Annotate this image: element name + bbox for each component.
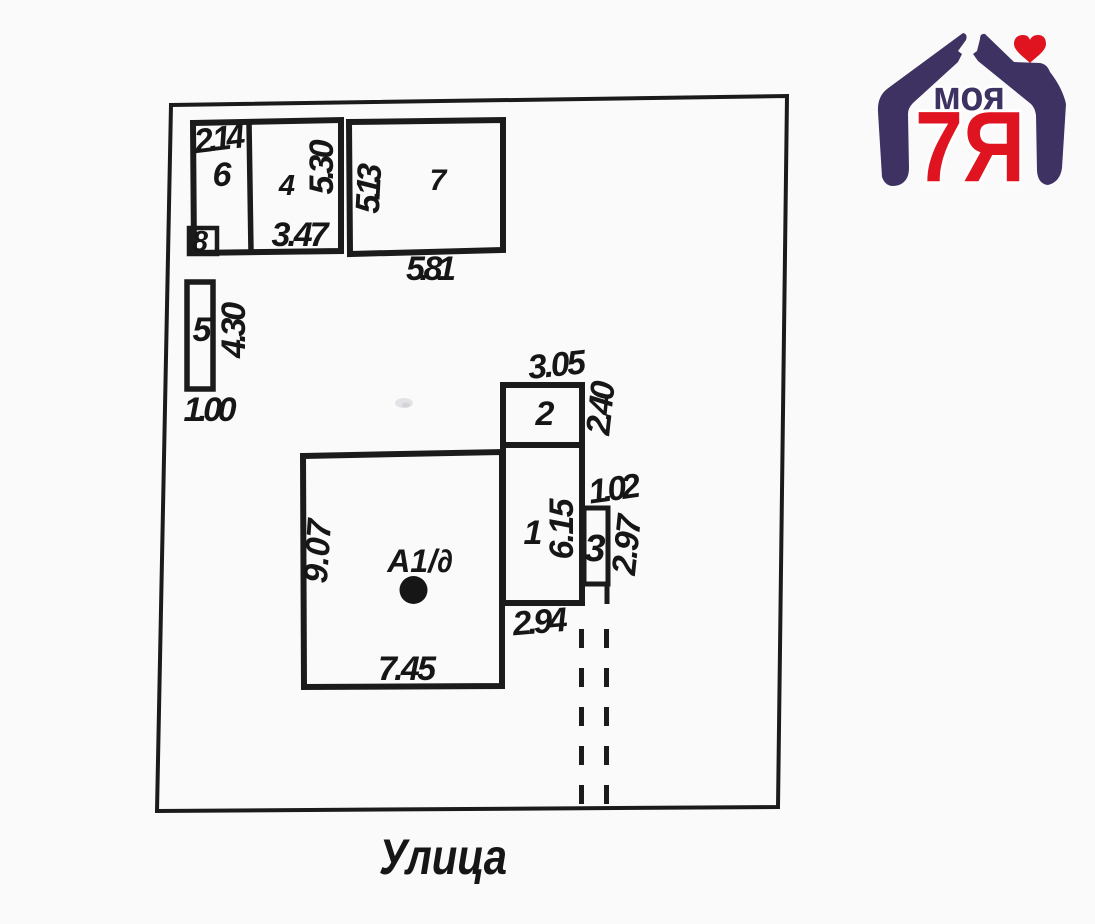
svg-text:7Я: 7Я [915, 91, 1025, 203]
svg-text:4.30: 4.30 [215, 302, 253, 359]
svg-text:7.45: 7.45 [378, 650, 437, 688]
svg-text:9.07: 9.07 [297, 516, 340, 585]
svg-text:5.13: 5.13 [349, 162, 390, 214]
svg-text:5.30: 5.30 [303, 139, 341, 194]
svg-text:6.15: 6.15 [543, 497, 581, 559]
svg-text:1.00: 1.00 [184, 391, 237, 429]
svg-text:3: 3 [584, 528, 605, 570]
svg-text:8: 8 [192, 226, 209, 258]
svg-text:Улица: Улица [379, 829, 507, 885]
svg-text:5: 5 [193, 311, 213, 349]
svg-text:6: 6 [213, 156, 233, 194]
svg-text:7: 7 [430, 164, 448, 197]
svg-text:3.05: 3.05 [526, 343, 589, 387]
svg-text:2.97: 2.97 [605, 511, 649, 578]
svg-text:1: 1 [524, 514, 543, 552]
svg-text:2.40: 2.40 [579, 379, 623, 438]
svg-text:5.81: 5.81 [406, 250, 456, 288]
svg-text:1.02: 1.02 [586, 467, 643, 512]
svg-text:2.94: 2.94 [510, 601, 569, 644]
svg-text:A1/∂: A1/∂ [386, 543, 453, 579]
svg-text:2.14: 2.14 [191, 117, 247, 161]
svg-text:3.47: 3.47 [272, 216, 331, 254]
svg-text:2: 2 [535, 395, 555, 433]
svg-text:4: 4 [278, 170, 295, 202]
